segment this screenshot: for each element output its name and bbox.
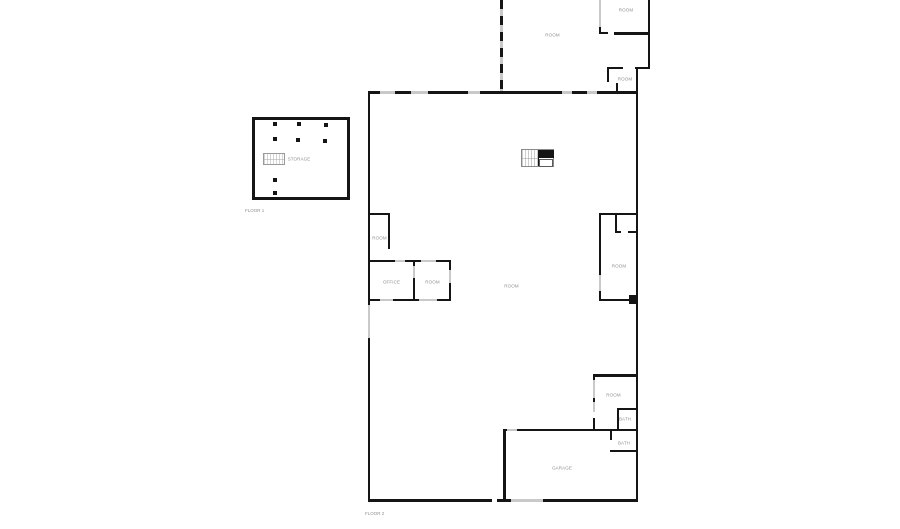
room-label-upper-back-room: ROOM <box>618 76 632 81</box>
wall-segment <box>437 299 451 301</box>
window-segment <box>507 429 517 432</box>
wall-segment <box>368 91 371 305</box>
wall-segment <box>368 260 396 262</box>
window-segment <box>380 91 396 94</box>
wall-segment <box>517 429 638 432</box>
window-segment <box>419 299 437 301</box>
wall-segment <box>614 32 650 35</box>
wall-segment <box>593 418 595 429</box>
stair-direction-bar <box>539 150 554 158</box>
room-label-upper-right-room: ROOM <box>619 7 633 12</box>
wall-segment <box>617 408 638 410</box>
wall-segment <box>628 231 638 233</box>
room-label-great-room: ROOM <box>504 284 518 289</box>
dashed-wall-segment <box>500 0 503 93</box>
wall-segment <box>607 67 623 69</box>
wall-segment <box>607 67 609 82</box>
window-segment <box>599 275 601 291</box>
window-segment <box>380 299 394 301</box>
stairs-icon <box>263 153 285 165</box>
column-marker <box>273 137 277 141</box>
window-segment <box>599 0 601 28</box>
window-segment <box>593 402 595 412</box>
wall-segment <box>599 299 629 301</box>
window-segment <box>587 91 597 94</box>
window-segment <box>449 270 451 283</box>
room-label-storage: STORAGE <box>288 157 311 162</box>
wall-segment <box>599 32 608 34</box>
room-label-lower-right-room: ROOM <box>606 392 620 397</box>
wall-segment <box>368 338 371 502</box>
wall-segment <box>597 91 638 94</box>
room-label-middle-right-room: ROOM <box>612 264 626 269</box>
wall-segment <box>572 91 587 94</box>
column-marker <box>323 139 327 143</box>
stair-landing <box>539 159 553 167</box>
room-label-office: OFFICE <box>383 279 400 284</box>
room-label-upper-room: ROOM <box>545 33 559 38</box>
column-marker <box>324 123 328 127</box>
wall-segment <box>393 299 419 301</box>
wall-segment <box>615 213 617 232</box>
wall-segment <box>503 429 506 502</box>
wall-segment <box>395 91 411 94</box>
wall-segment <box>648 0 651 69</box>
window-segment <box>468 91 480 94</box>
column-marker <box>296 138 300 142</box>
wall-segment <box>615 231 622 233</box>
window-segment <box>411 91 428 94</box>
floor1-caption: FLOOR 1 <box>245 208 264 213</box>
window-segment <box>395 260 405 262</box>
window-segment <box>593 380 595 398</box>
wall-segment <box>368 299 380 301</box>
wall-segment <box>610 450 638 452</box>
room-label-bath-lower: BATH <box>618 440 630 445</box>
floorplan-canvas: STORAGE FLOOR 1 ROOM ROOM ROOM ROOM OFFI… <box>0 0 900 529</box>
window-segment <box>413 266 415 278</box>
wall-segment <box>599 213 601 275</box>
wall-segment <box>599 213 638 215</box>
column-marker <box>273 178 277 182</box>
column-marker <box>273 122 277 126</box>
stair-treads <box>522 150 538 166</box>
wall-segment <box>543 499 638 502</box>
wall-segment <box>413 278 415 301</box>
wall-segment <box>388 213 390 249</box>
wall-segment <box>636 67 639 502</box>
window-segment <box>511 499 543 502</box>
floor2-caption: FLOOR 2 <box>365 511 384 516</box>
solid-marker <box>629 295 639 305</box>
column-marker <box>273 191 277 195</box>
wall-segment <box>594 374 638 377</box>
room-label-garage: GARAGE <box>552 465 572 470</box>
room-label-left-small-room: ROOM <box>372 236 386 241</box>
window-segment <box>368 305 371 338</box>
window-segment <box>562 91 572 94</box>
stairs-icon <box>521 149 554 167</box>
wall-segment <box>480 91 562 94</box>
wall-segment <box>610 431 612 440</box>
wall-segment <box>368 499 492 502</box>
column-marker <box>297 122 301 126</box>
room-label-bath-upper: BATH <box>619 416 631 421</box>
wall-segment <box>428 91 468 94</box>
room-label-room-beside-office: ROOM <box>425 279 439 284</box>
window-segment <box>421 260 436 262</box>
wall-segment <box>449 260 451 270</box>
